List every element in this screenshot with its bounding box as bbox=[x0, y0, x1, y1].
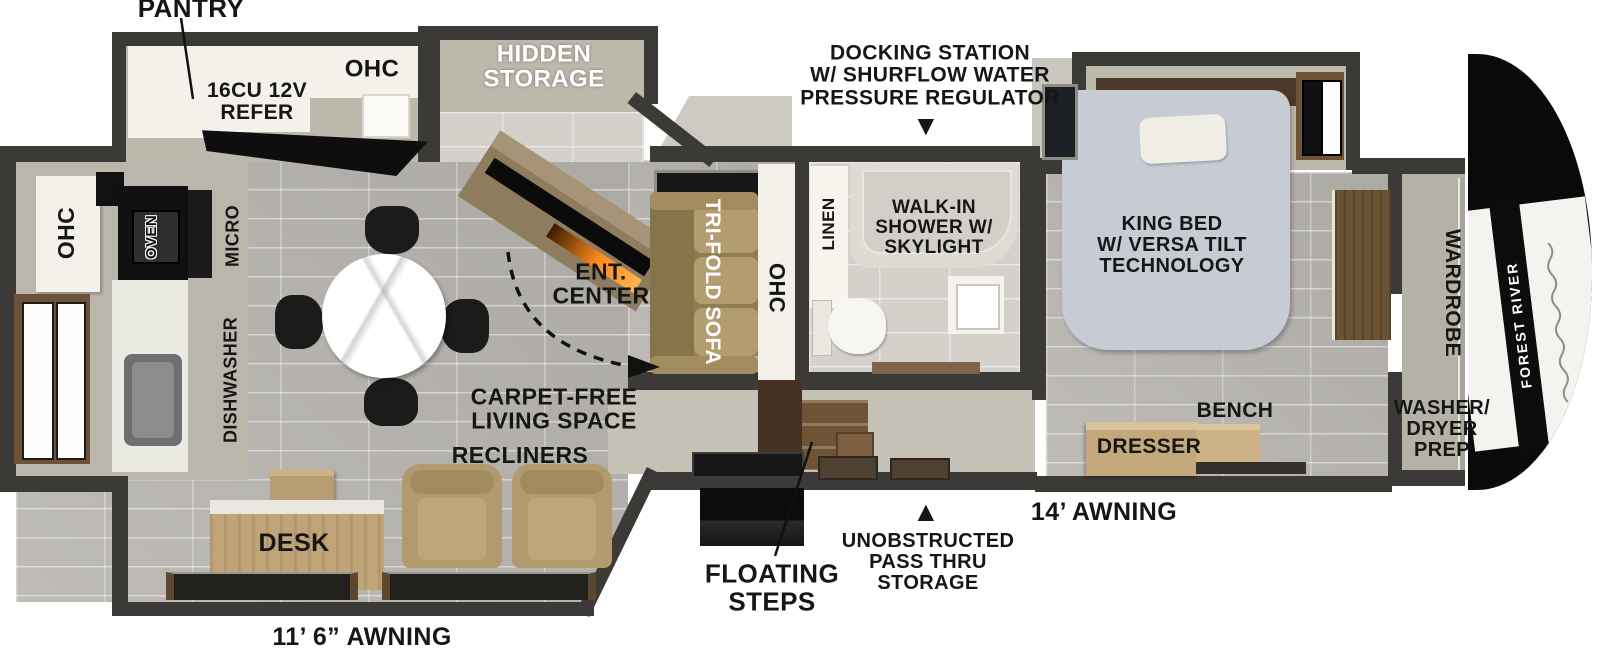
wall bbox=[1032, 162, 1046, 400]
floating-steps-exterior bbox=[700, 488, 804, 546]
recliner-back bbox=[520, 470, 604, 494]
label-king-bed: KING BED W/ VERSA TILT TECHNOLOGY bbox=[1097, 214, 1247, 278]
dinette-chair bbox=[364, 378, 418, 426]
label-oven: OVEN bbox=[144, 215, 160, 259]
label-refer: 16CU 12V REFER bbox=[207, 80, 307, 125]
recliner bbox=[402, 464, 502, 568]
recliner bbox=[512, 464, 612, 568]
bath-sink-basin bbox=[956, 284, 1000, 330]
wall bbox=[795, 162, 809, 378]
label-desk: DESK bbox=[258, 530, 329, 557]
passthru-hatch bbox=[818, 456, 878, 480]
wall bbox=[650, 146, 1040, 162]
rv-floorplan-canvas: FOREST RIVER PANTRY OHC 16CU 12V REFER H… bbox=[0, 0, 1600, 651]
label-docking-station: DOCKING STATION W/ SHURFLOW WATER PRESSU… bbox=[800, 43, 1060, 110]
bath-threshold bbox=[872, 362, 980, 374]
entry-door-mat bbox=[692, 452, 804, 478]
toilet-bowl bbox=[828, 298, 886, 354]
label-trifold-sofa: TRI-FOLD SOFA bbox=[701, 199, 723, 365]
passthru-arrow-up-icon: ▲ bbox=[912, 497, 940, 527]
bottom-window bbox=[166, 572, 358, 600]
dinette-chair bbox=[365, 206, 419, 254]
label-ent-center: ENT. CENTER bbox=[553, 260, 650, 309]
kitchen-window-pane bbox=[56, 302, 86, 460]
recliner-seat bbox=[418, 498, 486, 560]
bedroom-closet bbox=[1332, 190, 1391, 340]
label-pass-thru: UNOBSTRUCTED PASS THRU STORAGE bbox=[842, 531, 1015, 595]
pillow bbox=[1139, 114, 1227, 164]
wall bbox=[1035, 476, 1392, 492]
wall bbox=[0, 476, 122, 492]
label-linen: LINEN bbox=[820, 198, 838, 251]
label-awning-11-6: 11’ 6” AWNING bbox=[272, 624, 451, 651]
bottom-window bbox=[382, 572, 596, 600]
wall bbox=[418, 26, 658, 40]
label-awning-14: 14’ AWNING bbox=[1031, 499, 1177, 526]
label-recliners: RECLINERS bbox=[452, 443, 589, 467]
label-shower: WALK-IN SHOWER W/ SKYLIGHT bbox=[875, 198, 993, 258]
label-wardrobe: WARDROBE bbox=[1441, 229, 1463, 357]
recliner-seat bbox=[528, 498, 596, 560]
dinette-table bbox=[322, 254, 446, 378]
wall bbox=[112, 32, 430, 46]
wall bbox=[1072, 52, 1360, 66]
cap-brand-stripe: FOREST RIVER bbox=[1488, 194, 1549, 456]
dinette-chair bbox=[441, 299, 489, 353]
label-sofa-ohc: OHC bbox=[765, 263, 788, 313]
label-carpet-free: CARPET-FREE LIVING SPACE bbox=[471, 385, 638, 434]
label-washer-dryer: WASHER/ DRYER PREP bbox=[1394, 398, 1490, 462]
label-pantry: PANTRY bbox=[138, 0, 244, 23]
docking-arrow-down-icon: ▼ bbox=[912, 111, 940, 141]
wall bbox=[644, 26, 658, 104]
brand-logo-text: FOREST RIVER bbox=[1503, 261, 1534, 389]
wall bbox=[112, 32, 126, 162]
counter-appliance bbox=[362, 94, 410, 138]
wall bbox=[628, 372, 1037, 390]
passthru-hatch bbox=[890, 458, 950, 480]
sofa-back bbox=[650, 192, 694, 374]
microwave bbox=[188, 190, 212, 278]
label-bench: BENCH bbox=[1197, 400, 1274, 422]
recliner-back bbox=[410, 470, 494, 494]
kitchen-sink-basin bbox=[132, 362, 174, 438]
bedroom-floor-mat bbox=[1196, 462, 1306, 474]
label-kitchen-ohc: OHC bbox=[54, 207, 78, 259]
wall bbox=[112, 602, 594, 616]
pantry-cabinet bbox=[128, 46, 204, 138]
dinette-chair bbox=[275, 295, 323, 349]
label-hidden-storage: HIDDEN STORAGE bbox=[483, 42, 604, 93]
label-dresser: DRESSER bbox=[1097, 436, 1201, 458]
brand-squiggle-icon bbox=[1538, 240, 1579, 411]
wall bbox=[0, 146, 126, 162]
wall bbox=[112, 476, 128, 616]
kitchen-window-pane bbox=[22, 302, 54, 460]
label-dishwasher: DISHWASHER bbox=[221, 317, 240, 443]
label-micro: MICRO bbox=[223, 205, 242, 267]
bedroom-window-pane bbox=[1321, 80, 1342, 156]
wall bbox=[1346, 52, 1360, 170]
label-slide-ohc: OHC bbox=[345, 56, 400, 81]
label-floating-steps: FLOATING STEPS bbox=[705, 560, 839, 615]
bedroom-window-pane bbox=[1302, 80, 1323, 156]
